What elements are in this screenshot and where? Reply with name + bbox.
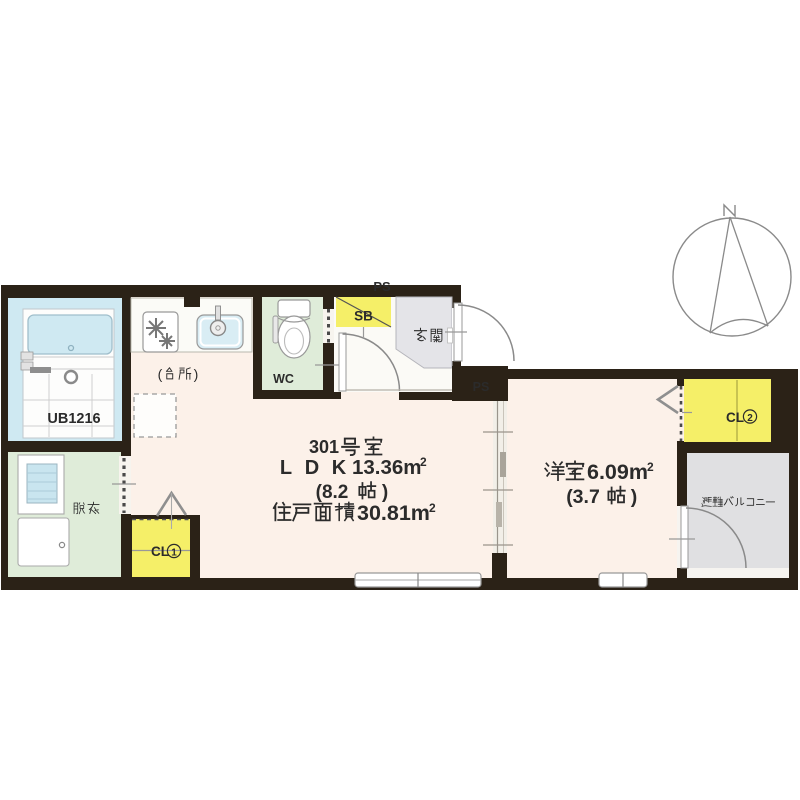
svg-text:(3.7: (3.7 <box>566 486 600 508</box>
svg-text:2: 2 <box>420 455 427 469</box>
svg-text:): ) <box>194 366 199 382</box>
svg-text:WC: WC <box>273 372 294 386</box>
svg-text:13.36m: 13.36m <box>352 456 422 479</box>
svg-text:2: 2 <box>647 460 654 474</box>
svg-text:(8.2: (8.2 <box>316 482 349 503</box>
svg-text:2: 2 <box>429 501 436 515</box>
svg-text:SB: SB <box>354 309 373 324</box>
svg-text:301: 301 <box>309 437 339 457</box>
svg-text:UB1216: UB1216 <box>47 411 100 427</box>
svg-text:L: L <box>280 457 292 479</box>
svg-text:D: D <box>305 457 319 479</box>
svg-text:): ) <box>382 482 388 503</box>
svg-text:30.81m: 30.81m <box>357 501 430 525</box>
svg-text:): ) <box>631 486 638 508</box>
svg-text:2: 2 <box>747 413 753 424</box>
svg-text:CL: CL <box>151 544 169 559</box>
svg-text:PS: PS <box>373 279 391 294</box>
svg-text:K: K <box>332 457 347 479</box>
svg-text:(: ( <box>158 366 163 382</box>
svg-text:CL: CL <box>726 410 744 425</box>
svg-text:PS: PS <box>473 380 490 394</box>
svg-text:1: 1 <box>171 547 177 558</box>
svg-text:6.09m: 6.09m <box>587 460 648 484</box>
